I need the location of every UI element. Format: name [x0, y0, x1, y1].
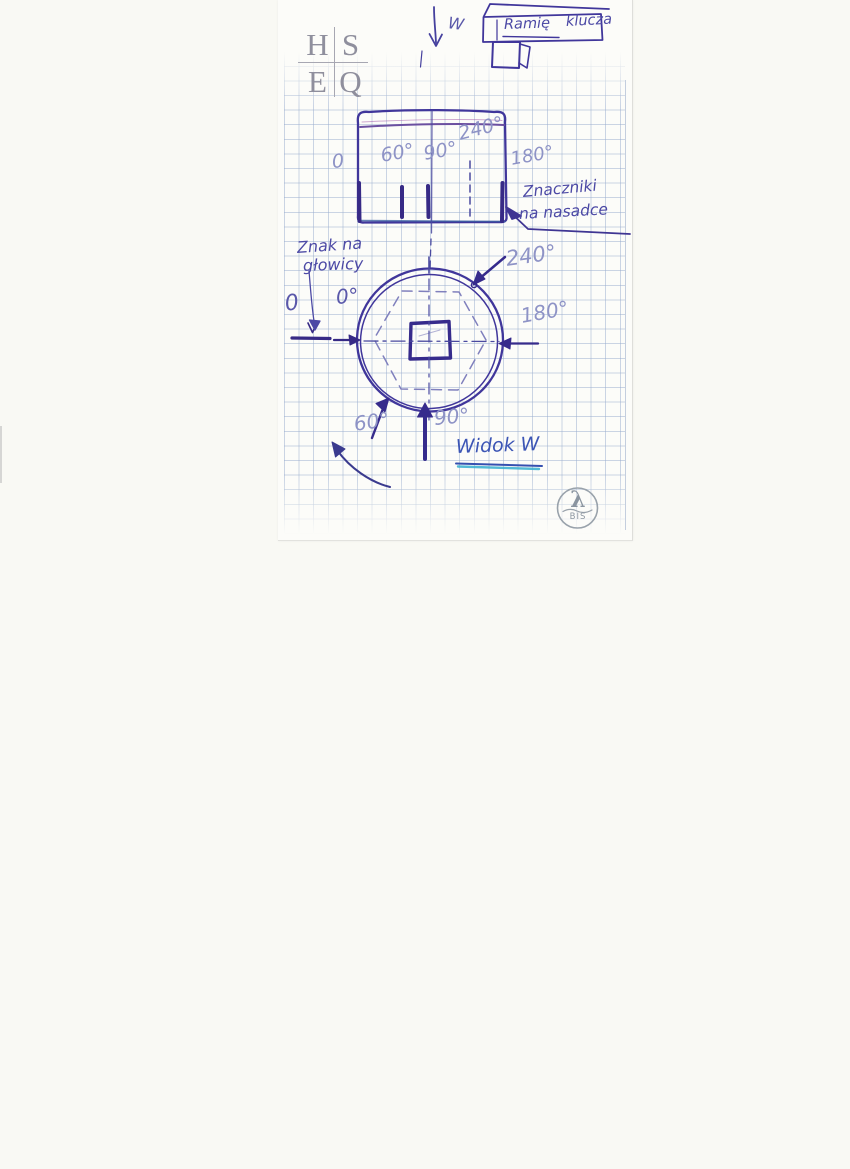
caption-underline — [456, 464, 542, 470]
view-letter-label: W — [447, 15, 465, 34]
scan-smudge — [120, 700, 130, 706]
top-angle-60: 60° — [353, 409, 391, 435]
wrench-label-klucza: klucza — [566, 13, 613, 31]
top-angle-90: 90° — [433, 405, 470, 429]
bis-logo-lambda-icon: λ — [566, 489, 590, 511]
socket-side-view-tick-marks — [359, 183, 503, 221]
scan-edge-artifact — [0, 426, 2, 483]
annotation-znak-line2: głowicy — [303, 256, 364, 275]
side-angle-0: 0 — [331, 152, 345, 173]
square-drive-outline — [410, 322, 451, 360]
top-angle-0: 0° — [335, 285, 359, 308]
view-caption: Widok W — [456, 435, 540, 458]
annotation-leader-znak — [309, 271, 320, 330]
arrow-240 — [471, 257, 505, 288]
scan-smudge — [712, 524, 726, 532]
scanned-sheet: H S E Q — [278, 0, 633, 541]
scan-smudge — [756, 832, 768, 839]
top-angle-zero: 0 — [283, 291, 300, 316]
bis-logo-text: BIS — [564, 512, 592, 522]
socket-top-view-outline — [355, 266, 506, 414]
rotation-arrow-icon — [332, 442, 390, 487]
arrow-180 — [499, 338, 538, 349]
view-direction-arrow-icon — [421, 7, 443, 67]
datum-mark-left — [292, 323, 360, 345]
wrench-label-ramie: Ramię — [504, 16, 551, 33]
